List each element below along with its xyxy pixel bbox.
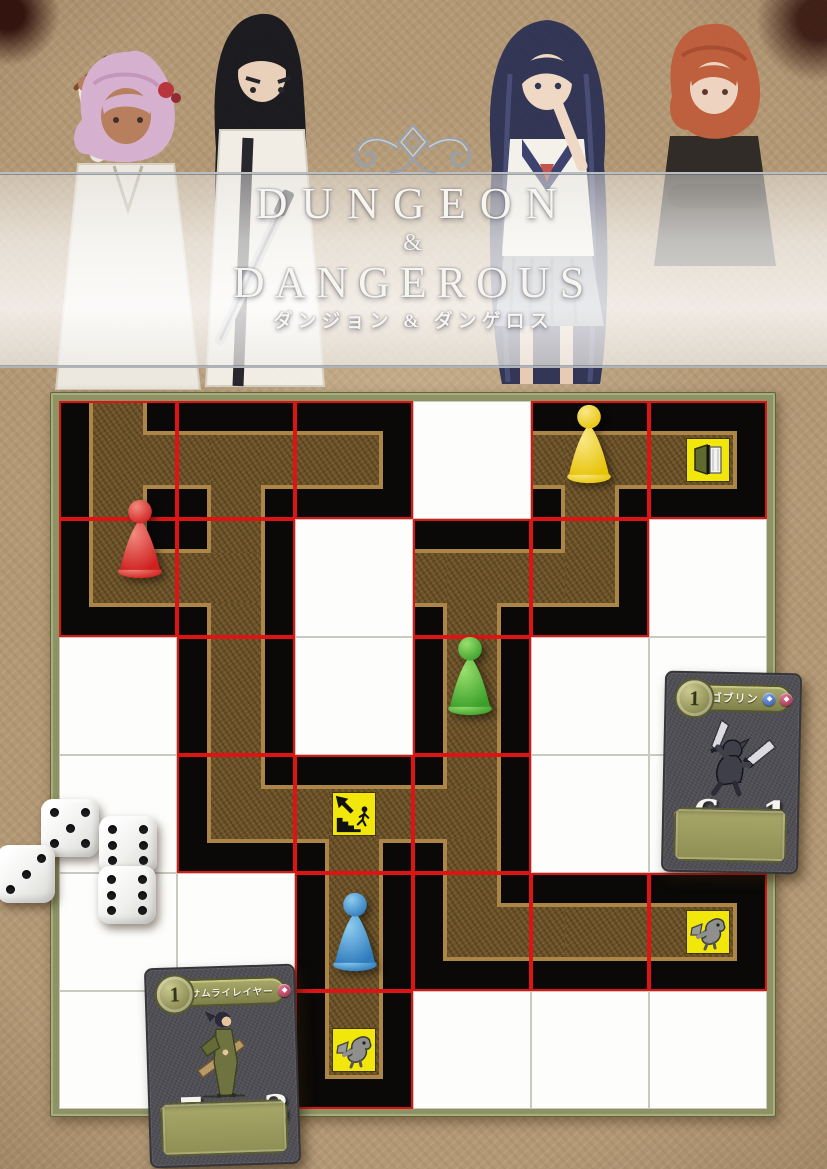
board-cell[interactable] bbox=[649, 401, 767, 519]
card-text-box bbox=[160, 1099, 289, 1157]
board-cell[interactable] bbox=[531, 519, 649, 637]
pawn-red[interactable] bbox=[112, 499, 168, 579]
die-showing-3[interactable] bbox=[0, 845, 55, 903]
die-pip bbox=[139, 825, 148, 834]
die-pip bbox=[37, 854, 46, 863]
board-cell[interactable] bbox=[649, 991, 767, 1109]
board-cell[interactable] bbox=[177, 637, 295, 755]
board-cell[interactable] bbox=[413, 519, 531, 637]
die-pip bbox=[50, 808, 59, 817]
pawn-green[interactable] bbox=[442, 636, 498, 716]
corridor-path bbox=[295, 435, 379, 485]
die-pip bbox=[6, 885, 15, 894]
stairs-up-icon-tile bbox=[333, 793, 375, 835]
die-pip bbox=[22, 870, 31, 879]
board-cell[interactable] bbox=[531, 755, 649, 873]
board-cell[interactable] bbox=[413, 991, 531, 1109]
goblin-monster-icon-tile bbox=[333, 1029, 375, 1071]
title-line-2: DANGEROUS bbox=[0, 258, 827, 308]
title-line-1: DUNGEON bbox=[0, 180, 827, 228]
card-name: サムライレイヤー bbox=[190, 983, 273, 1000]
die-pip bbox=[138, 875, 147, 884]
die-pip bbox=[107, 906, 116, 915]
die-icon bbox=[762, 692, 775, 705]
board-cell[interactable] bbox=[177, 401, 295, 519]
board-cell[interactable] bbox=[531, 873, 649, 991]
board-cell[interactable] bbox=[413, 401, 531, 519]
die-pip bbox=[50, 839, 59, 848]
open-door-icon-tile bbox=[687, 439, 729, 481]
die-pip bbox=[108, 825, 117, 834]
goblin-monster-icon-tile bbox=[687, 911, 729, 953]
die-pip bbox=[138, 906, 147, 915]
card-banner: 1 サムライレイヤー bbox=[156, 976, 286, 1008]
die-showing-6[interactable] bbox=[98, 866, 156, 924]
stairs-up-icon bbox=[333, 793, 375, 835]
board-cell[interactable] bbox=[531, 637, 649, 755]
monster-card-goblin[interactable]: 1 ゴブリン ♥ 6 bbox=[661, 671, 802, 875]
pawn-blue[interactable] bbox=[327, 892, 383, 972]
character-card-samurai-layer[interactable]: 1 サムライレイヤー ♥ 7 bbox=[144, 964, 301, 1169]
board-cell[interactable] bbox=[295, 519, 413, 637]
die-pip bbox=[107, 891, 116, 900]
corridor-path bbox=[211, 435, 261, 519]
die-pip bbox=[81, 839, 90, 848]
board-cell[interactable] bbox=[295, 755, 413, 873]
corridor-path bbox=[565, 907, 649, 957]
die-pip bbox=[108, 856, 117, 865]
board-cell[interactable] bbox=[177, 519, 295, 637]
goblin-monster-icon bbox=[333, 1029, 375, 1071]
board-cell[interactable] bbox=[413, 755, 531, 873]
board-cell[interactable] bbox=[177, 755, 295, 873]
corridor-path bbox=[211, 789, 295, 839]
title-block: DUNGEON & DANGEROUS ダンジョン & ダンゲロス bbox=[0, 180, 827, 336]
corridor-path bbox=[177, 553, 261, 603]
corridor-path bbox=[565, 519, 615, 603]
die-pip bbox=[138, 891, 147, 900]
die-pip bbox=[139, 841, 148, 850]
board-cell[interactable] bbox=[295, 401, 413, 519]
corridor-path bbox=[413, 789, 497, 839]
card-text-box bbox=[673, 807, 787, 863]
board-cell[interactable] bbox=[295, 637, 413, 755]
card-name: ゴブリン bbox=[710, 690, 758, 707]
corridor-path bbox=[447, 907, 531, 957]
ornament-flourish-icon bbox=[333, 120, 493, 178]
board-cell[interactable] bbox=[531, 991, 649, 1109]
header: DUNGEON & DANGEROUS ダンジョン & ダンゲロス bbox=[0, 0, 827, 395]
board-cell[interactable] bbox=[295, 991, 413, 1109]
board-cell[interactable] bbox=[59, 637, 177, 755]
die-pip bbox=[139, 856, 148, 865]
board-cell[interactable] bbox=[413, 873, 531, 991]
gem-icon bbox=[278, 983, 291, 996]
die-pip bbox=[81, 808, 90, 817]
die-pip bbox=[107, 875, 116, 884]
corridor-path bbox=[211, 671, 261, 755]
gem-icon bbox=[779, 692, 792, 705]
die-pip bbox=[66, 824, 75, 833]
card-banner: 1 ゴブリン bbox=[676, 683, 792, 713]
die-pip bbox=[108, 841, 117, 850]
title-ampersand: & bbox=[0, 228, 827, 258]
board-cell[interactable] bbox=[649, 519, 767, 637]
corridor-path bbox=[447, 553, 497, 637]
page: DUNGEON & DANGEROUS ダンジョン & ダンゲロス bbox=[0, 0, 827, 1169]
goblin-monster-icon bbox=[687, 911, 729, 953]
open-door-icon bbox=[687, 439, 729, 481]
title-subtitle: ダンジョン & ダンゲロス bbox=[0, 308, 827, 336]
board-cell[interactable] bbox=[649, 873, 767, 991]
pawn-yellow[interactable] bbox=[561, 404, 617, 484]
